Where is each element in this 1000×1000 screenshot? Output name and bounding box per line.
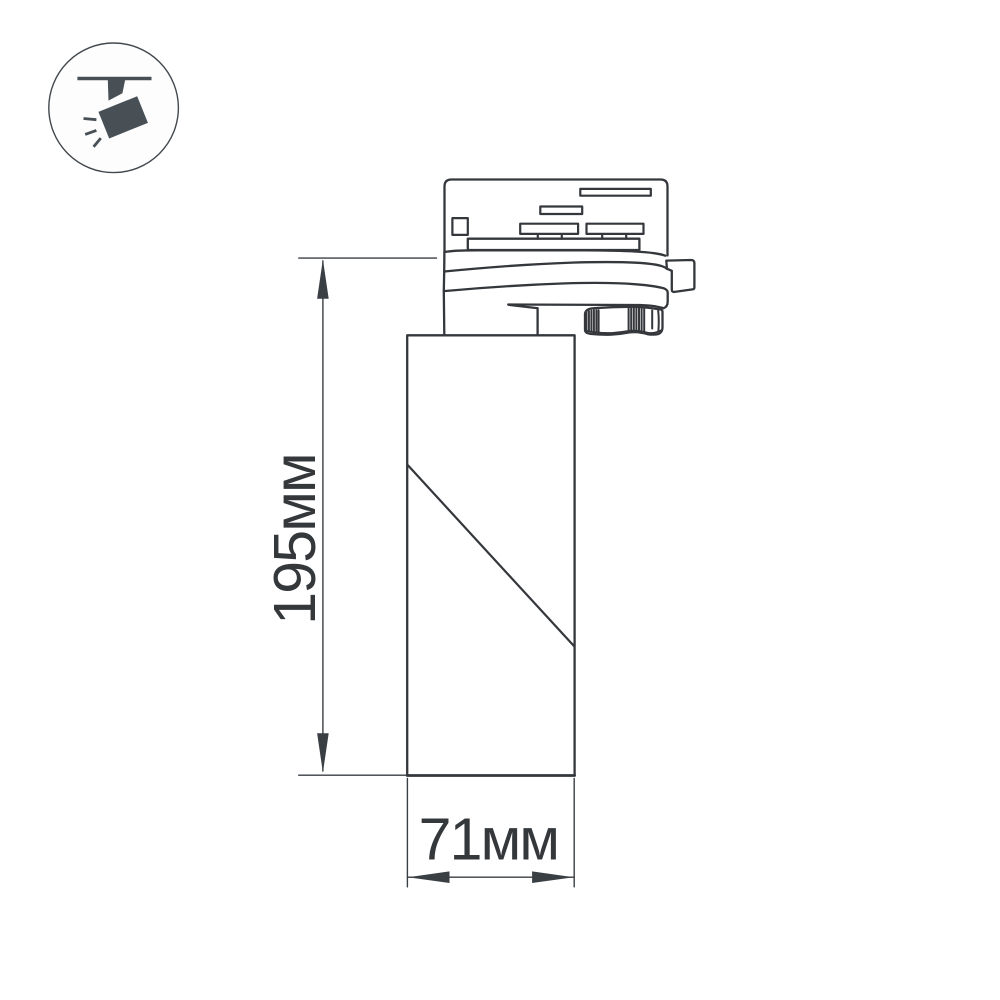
svg-text:195мм: 195мм: [262, 454, 328, 625]
svg-text:71мм: 71мм: [419, 807, 559, 873]
